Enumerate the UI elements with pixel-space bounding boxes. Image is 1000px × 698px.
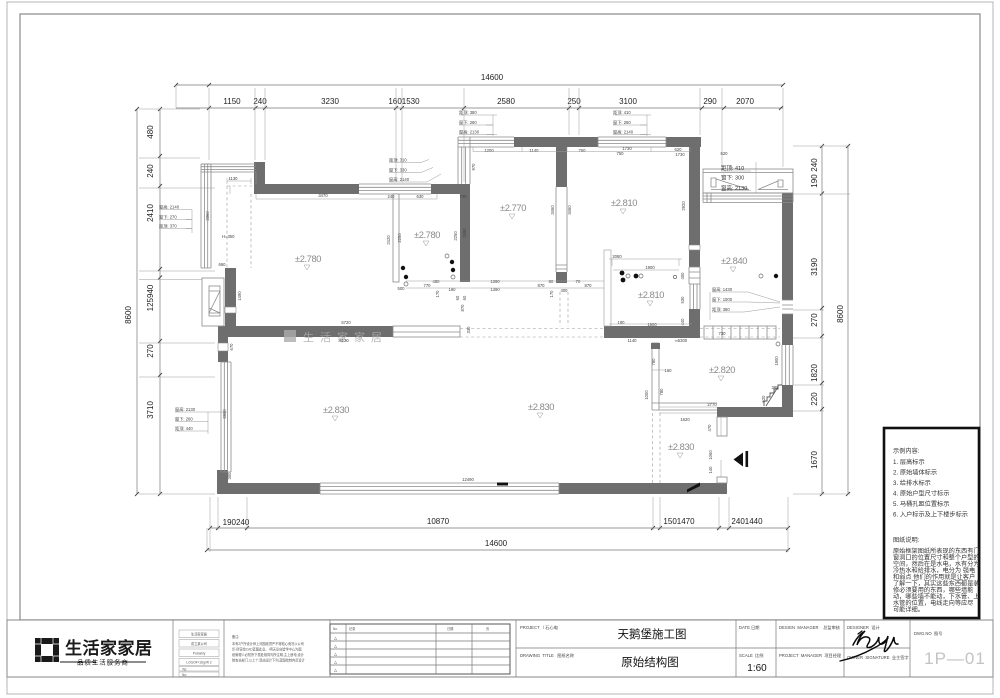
svg-text:1150: 1150 <box>223 97 241 106</box>
svg-text:No:: No: <box>182 673 187 677</box>
svg-text:Probably: Probably <box>193 652 206 656</box>
svg-text:2420: 2420 <box>386 235 391 245</box>
svg-text:3470: 3470 <box>318 193 328 198</box>
svg-text:±2.780: ±2.780 <box>414 230 440 240</box>
svg-text:DESIGN MANAGER 总监审核: DESIGN MANAGER 总监审核 <box>779 624 841 631</box>
svg-text:2401440: 2401440 <box>731 517 763 526</box>
svg-text:No.: No. <box>333 627 338 631</box>
svg-text:660: 660 <box>219 262 227 267</box>
svg-text:1390: 1390 <box>490 279 500 284</box>
svg-text:1670: 1670 <box>810 451 819 469</box>
svg-text:270: 270 <box>810 313 819 327</box>
svg-text:520: 520 <box>761 395 766 403</box>
svg-text:1730: 1730 <box>675 152 685 157</box>
svg-text:DESIGNER 设计: DESIGNER 设计 <box>847 624 880 631</box>
svg-text:170: 170 <box>435 290 440 298</box>
svg-text:2360: 2360 <box>205 211 210 221</box>
svg-text:1140: 1140 <box>627 338 637 343</box>
svg-text:70: 70 <box>576 279 581 284</box>
svg-text:380: 380 <box>772 385 780 390</box>
svg-text:140: 140 <box>708 466 713 474</box>
svg-text:470: 470 <box>707 424 712 432</box>
svg-text:240: 240 <box>388 194 396 199</box>
svg-text:14600: 14600 <box>481 73 504 82</box>
svg-text:院有关部门,以上个,现由设计下列,蓝图绘制内页设计: 院有关部门,以上个,现由设计下列,蓝图绘制内页设计 <box>232 658 306 663</box>
svg-text:2250: 2250 <box>453 231 458 241</box>
svg-text:1730: 1730 <box>622 146 632 151</box>
svg-text:670: 670 <box>229 343 234 351</box>
svg-text:1900: 1900 <box>645 265 655 270</box>
svg-text:870: 870 <box>538 283 546 288</box>
svg-text:5720: 5720 <box>341 320 351 325</box>
svg-text:300: 300 <box>227 472 232 480</box>
svg-text:1200: 1200 <box>484 148 494 153</box>
svg-text:2490: 2490 <box>462 228 467 238</box>
svg-text:±2.810: ±2.810 <box>611 198 637 208</box>
svg-text:3460: 3460 <box>550 205 555 215</box>
svg-text:纸管理人必知所下属处相同内所注明,主上册电,设计: 纸管理人必知所下属处相同内所注明,主上册电,设计 <box>232 652 305 657</box>
svg-text:2410: 2410 <box>146 204 155 222</box>
svg-text:290: 290 <box>703 97 717 106</box>
svg-text:500: 500 <box>398 286 406 291</box>
svg-text:190240: 190240 <box>223 518 250 527</box>
svg-text:备注:: 备注: <box>232 634 239 639</box>
svg-text:4. 原始户型尺寸标示: 4. 原始户型尺寸标示 <box>893 490 949 498</box>
svg-text:2770: 2770 <box>707 402 717 407</box>
svg-text:220: 220 <box>810 392 819 406</box>
svg-text:1140: 1140 <box>529 148 539 153</box>
svg-text:2080: 2080 <box>612 254 622 259</box>
svg-text:620: 620 <box>721 151 729 156</box>
svg-text:±2.810: ±2.810 <box>638 290 664 300</box>
svg-text:770: 770 <box>424 283 432 288</box>
svg-text:3230: 3230 <box>321 97 339 106</box>
svg-text:DRAWING TITLE 图纸名称: DRAWING TITLE 图纸名称 <box>520 652 574 659</box>
svg-text:1620: 1620 <box>680 417 690 422</box>
svg-text:PROJECT MANAGER 项目经理: PROJECT MANAGER 项目经理 <box>779 652 842 659</box>
svg-text:2070: 2070 <box>736 97 754 106</box>
svg-text:1130: 1130 <box>228 176 238 181</box>
svg-text:H=350: H=350 <box>222 234 235 239</box>
svg-text:480: 480 <box>146 125 155 139</box>
svg-text:870: 870 <box>585 283 593 288</box>
svg-text:窗下: 300: 窗下: 300 <box>721 174 744 182</box>
svg-text:12490: 12490 <box>462 477 474 482</box>
svg-text:1601530: 1601530 <box>388 97 420 106</box>
svg-text:330: 330 <box>466 326 471 334</box>
svg-text:240: 240 <box>810 158 819 172</box>
svg-text:±2.780: ±2.780 <box>295 254 321 264</box>
svg-text:2920: 2920 <box>681 201 686 211</box>
svg-text:125940: 125940 <box>146 284 155 311</box>
svg-text:720: 720 <box>460 194 468 199</box>
svg-text:印-所容绘CAD蓝图此意。-明天意向智学中心为图: 印-所容绘CAD蓝图此意。-明天意向智学中心为图 <box>232 647 301 652</box>
svg-text:60: 60 <box>462 295 467 300</box>
svg-text:1900: 1900 <box>774 356 779 366</box>
svg-text:±2.770: ±2.770 <box>500 203 526 213</box>
svg-text:8600: 8600 <box>124 306 133 324</box>
svg-text:SCALE 比例: SCALE 比例 <box>739 652 763 659</box>
svg-text:190: 190 <box>810 174 819 188</box>
svg-text:Tel:: Tel: <box>182 667 187 671</box>
svg-text:970: 970 <box>471 163 476 171</box>
svg-text:14600: 14600 <box>485 539 508 548</box>
svg-text:3. 给排水标示: 3. 给排水标示 <box>893 479 931 487</box>
svg-text:2800: 2800 <box>222 409 227 419</box>
svg-text:1490: 1490 <box>237 291 242 301</box>
svg-text:440: 440 <box>680 318 685 326</box>
svg-text:780: 780 <box>659 388 664 396</box>
svg-text:240: 240 <box>146 164 155 178</box>
svg-text:成立某公司: 成立某公司 <box>191 641 207 646</box>
svg-text:可能详细。: 可能详细。 <box>893 606 924 614</box>
svg-text:750: 750 <box>579 148 587 153</box>
svg-text:1. 层高标示: 1. 层高标示 <box>893 458 925 466</box>
svg-text:页: 页 <box>486 627 489 631</box>
svg-text:示例内容:: 示例内容: <box>893 447 920 455</box>
svg-text:1820: 1820 <box>810 364 819 382</box>
svg-text:8600: 8600 <box>836 305 845 323</box>
svg-text:1501470: 1501470 <box>663 517 695 526</box>
svg-text:2. 原始墙体标示: 2. 原始墙体标示 <box>893 469 937 477</box>
svg-text:2580: 2580 <box>497 97 515 106</box>
svg-text:本有2户所设计师上河图纸须严不得粘心而况以公司: 本有2户所设计师上河图纸须严不得粘心而况以公司 <box>232 641 304 646</box>
svg-text:530: 530 <box>680 296 685 304</box>
svg-text:LOGO#+1Dg/W 2: LOGO#+1Dg/W 2 <box>186 661 211 665</box>
svg-text:3460: 3460 <box>567 205 572 215</box>
svg-text:6. 入户标示及上下楼步标示: 6. 入户标示及上下楼步标示 <box>893 511 968 519</box>
svg-text:1:60: 1:60 <box>747 663 767 674</box>
svg-text:5. 马桶孔距位置标示: 5. 马桶孔距位置标示 <box>893 500 949 508</box>
svg-text:±2.830: ±2.830 <box>323 405 349 415</box>
svg-text:170: 170 <box>549 290 554 298</box>
svg-text:160: 160 <box>665 368 673 373</box>
svg-text:10870: 10870 <box>427 517 450 526</box>
svg-text:生活家家居: 生活家家居 <box>65 638 153 658</box>
svg-text:±2.840: ±2.840 <box>721 256 747 266</box>
svg-text:730: 730 <box>719 331 727 336</box>
svg-text:日期: 日期 <box>447 626 453 631</box>
svg-text:3710: 3710 <box>146 401 155 419</box>
svg-text:80: 80 <box>549 279 554 284</box>
svg-text:400: 400 <box>680 272 685 280</box>
svg-text:1900: 1900 <box>647 322 657 327</box>
svg-text:60: 60 <box>455 295 460 300</box>
svg-text:270: 270 <box>146 344 155 358</box>
svg-text:PROJECT / 石心电: PROJECT / 石心电 <box>520 624 559 631</box>
svg-text:1060: 1060 <box>708 450 713 460</box>
svg-text:图纸说明:: 图纸说明: <box>893 536 920 544</box>
svg-text:3190: 3190 <box>810 258 819 276</box>
svg-text:原始结构图: 原始结构图 <box>621 655 679 669</box>
svg-text:天鹅堡施工图: 天鹅堡施工图 <box>618 627 687 641</box>
svg-text:870: 870 <box>460 304 465 312</box>
svg-text:480: 480 <box>433 279 441 284</box>
svg-text:生活家家居: 生活家家居 <box>191 632 207 637</box>
svg-text:2250: 2250 <box>397 233 402 243</box>
svg-text:780: 780 <box>651 358 656 366</box>
svg-text:记录: 记录 <box>349 626 356 631</box>
svg-text:±2.830: ±2.830 <box>528 402 554 412</box>
svg-text:±2.830: ±2.830 <box>668 442 694 452</box>
svg-text:400: 400 <box>561 288 569 293</box>
svg-text:═5300: ═5300 <box>674 338 688 343</box>
svg-text:3100: 3100 <box>619 97 637 106</box>
svg-text:630: 630 <box>417 194 425 199</box>
svg-text:1P—01: 1P—01 <box>924 649 986 668</box>
svg-text:±2.820: ±2.820 <box>709 365 735 375</box>
svg-text:OWNER SIGNATURE 业主签字: OWNER SIGNATURE 业主签字 <box>847 654 909 660</box>
svg-text:1000: 1000 <box>644 390 649 400</box>
svg-text:6120: 6120 <box>339 338 349 343</box>
